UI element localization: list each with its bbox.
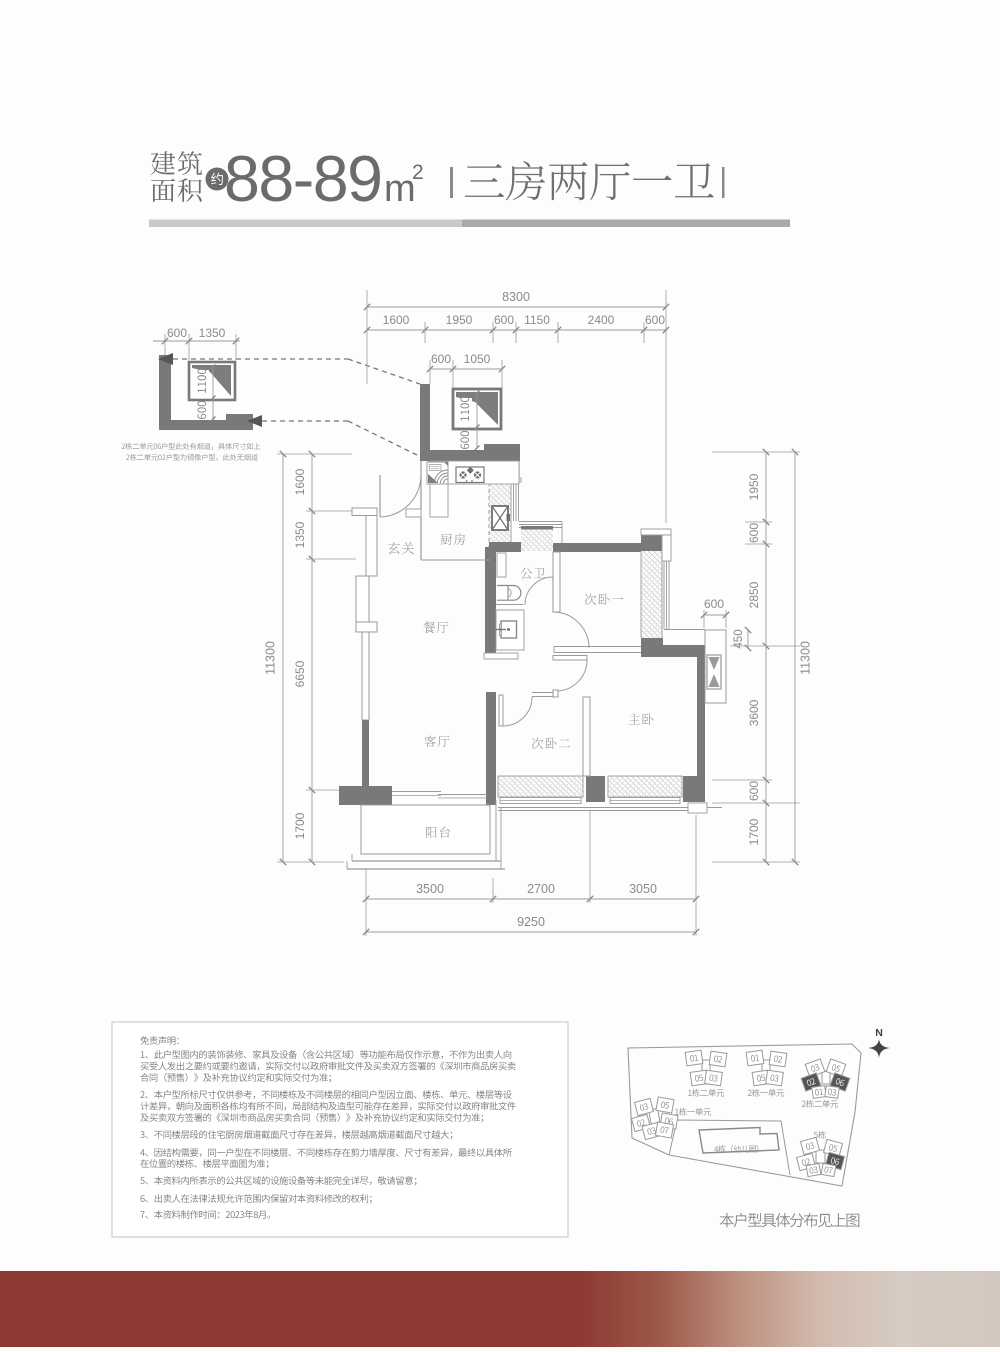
svg-text:8300: 8300	[502, 290, 530, 304]
svg-text:600: 600	[747, 781, 761, 801]
svg-text:600: 600	[747, 523, 761, 543]
svg-text:3500: 3500	[416, 882, 444, 896]
svg-text:1050: 1050	[464, 352, 491, 366]
svg-text:2700: 2700	[527, 882, 555, 896]
svg-text:3050: 3050	[629, 882, 657, 896]
svg-text:600: 600	[494, 313, 514, 327]
svg-text:600: 600	[704, 597, 724, 611]
svg-text:450: 450	[733, 629, 745, 648]
svg-text:1700: 1700	[293, 812, 307, 839]
svg-text:11300: 11300	[798, 641, 812, 675]
svg-text:88-89: 88-89	[224, 143, 381, 215]
svg-text:2: 2	[412, 161, 424, 184]
svg-text:600: 600	[645, 313, 665, 327]
svg-text:1700: 1700	[747, 818, 761, 845]
svg-text:9250: 9250	[517, 915, 545, 929]
svg-text:N: N	[875, 1027, 883, 1039]
svg-text:1950: 1950	[747, 473, 761, 500]
svg-text:1600: 1600	[293, 468, 307, 495]
svg-text:3600: 3600	[747, 699, 761, 726]
svg-text:6650: 6650	[293, 660, 307, 687]
svg-text:m: m	[384, 168, 416, 210]
svg-text:1950: 1950	[446, 313, 473, 327]
svg-text:11300: 11300	[263, 641, 277, 675]
svg-text:2850: 2850	[747, 581, 761, 608]
svg-text:600: 600	[167, 326, 187, 340]
svg-text:2400: 2400	[588, 313, 615, 327]
svg-text:600: 600	[431, 352, 451, 366]
svg-text:1350: 1350	[199, 326, 226, 340]
svg-text:1600: 1600	[383, 313, 410, 327]
svg-text:1150: 1150	[524, 313, 550, 327]
svg-text:1350: 1350	[293, 521, 307, 548]
